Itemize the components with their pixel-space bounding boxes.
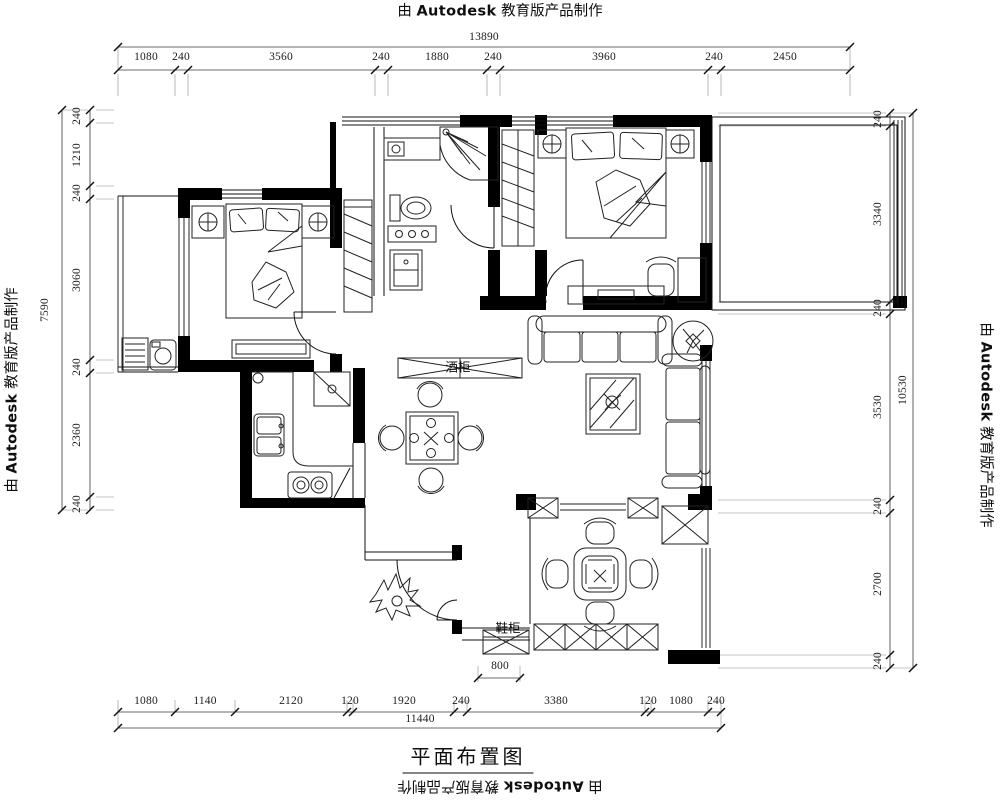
dim-top-seg-2: 3560 (269, 51, 293, 63)
dim-bottom-seg-3: 120 (341, 695, 359, 707)
shoe-cabinet-label: 鞋柜 (495, 618, 520, 637)
banner-prefix: 由 (397, 4, 412, 20)
dim-right-seg-5: 2700 (872, 572, 884, 596)
plan-title: 平面布置图 (403, 741, 534, 774)
banner-prefix: 由 (978, 322, 994, 337)
dim-right-seg-6: 240 (872, 652, 884, 670)
dim-bottom-seg-8: 1080 (669, 695, 693, 707)
floorplan-canvas: 由 Autodesk 教育版产品制作 由 Autodesk 教育版产品制作 由 … (0, 0, 1000, 800)
kitchen-fixtures (252, 372, 353, 498)
dim-top-seg-8: 2450 (773, 51, 797, 63)
dim-right-seg-2: 240 (872, 299, 884, 317)
banner-suffix: 教育版产品制作 (5, 287, 21, 389)
hall-closet (344, 200, 372, 312)
dim-bottom-seg-0: 1080 (134, 695, 158, 707)
dining-furniture (378, 358, 522, 494)
dim-left-seg-3: 3060 (71, 268, 83, 292)
autodesk-banner-top: 由 Autodesk 教育版产品制作 (397, 0, 602, 21)
master-bedroom-furniture (538, 128, 706, 304)
dim-right-seg-3: 3530 (872, 395, 884, 419)
windows (118, 117, 902, 648)
banner-product: Autodesk (503, 778, 583, 794)
banner-prefix: 由 (588, 778, 603, 794)
bedroom2-furniture (122, 204, 334, 370)
banner-suffix: 教育版产品制作 (397, 778, 499, 794)
banner-suffix: 教育版产品制作 (978, 426, 994, 528)
leisure-room-furniture (528, 498, 708, 650)
dim-left-seg-4: 240 (71, 358, 83, 376)
dim-bottom-seg-9: 240 (707, 695, 725, 707)
dim-right-total: 10530 (897, 375, 909, 405)
dim-right-seg-0: 240 (872, 110, 884, 128)
dim-left-seg-5: 2360 (71, 423, 83, 447)
banner-product: Autodesk (5, 393, 21, 473)
dimension-extension-lines (62, 47, 913, 728)
dim-top-seg-3: 240 (372, 51, 390, 63)
autodesk-banner-bottom: 由 Autodesk 教育版产品制作 (397, 777, 602, 798)
dim-bottom-seg-2: 2120 (279, 695, 303, 707)
dimension-lines (62, 47, 913, 728)
walls (178, 115, 907, 664)
dim-left-seg-1: 1210 (71, 143, 83, 167)
dim-left-seg-2: 240 (71, 184, 83, 202)
banner-product: Autodesk (978, 341, 994, 421)
dim-bottom-total: 11440 (405, 713, 434, 725)
wine-cabinet-label: 酒柜 (445, 357, 470, 376)
floorplan-drawing (0, 0, 1000, 800)
dim-top-seg-0: 1080 (134, 51, 158, 63)
dim-bottom-seg-4: 1920 (392, 695, 416, 707)
dim-right-seg-1: 3340 (872, 202, 884, 226)
dim-top-total: 13890 (469, 31, 499, 43)
dim-top-seg-1: 240 (172, 51, 190, 63)
dim-entry-width: 800 (491, 660, 509, 672)
dim-left-total: 7590 (39, 298, 51, 322)
dim-left-seg-6: 240 (71, 495, 83, 513)
dim-left-seg-0: 240 (71, 107, 83, 125)
dim-top-seg-6: 3960 (592, 51, 616, 63)
corridor-closet (502, 130, 534, 246)
dim-bottom-seg-7: 120 (639, 695, 657, 707)
dim-right-seg-4: 240 (872, 497, 884, 515)
entry-area (370, 574, 529, 654)
dim-top-seg-4: 1880 (425, 51, 449, 63)
dim-top-seg-5: 240 (484, 51, 502, 63)
bathroom-fixtures (384, 127, 498, 290)
banner-product: Autodesk (416, 4, 496, 20)
dim-bottom-seg-6: 3380 (544, 695, 568, 707)
banner-prefix: 由 (5, 478, 21, 493)
banner-suffix: 教育版产品制作 (501, 4, 603, 20)
dim-bottom-seg-1: 1140 (193, 695, 216, 707)
dimension-ticks (58, 43, 917, 732)
dim-top-seg-7: 240 (705, 51, 723, 63)
living-room-furniture (528, 316, 713, 488)
autodesk-banner-right: 由 Autodesk 教育版产品制作 (977, 322, 998, 527)
autodesk-banner-left: 由 Autodesk 教育版产品制作 (1, 287, 22, 492)
dim-bottom-seg-5: 240 (452, 695, 470, 707)
